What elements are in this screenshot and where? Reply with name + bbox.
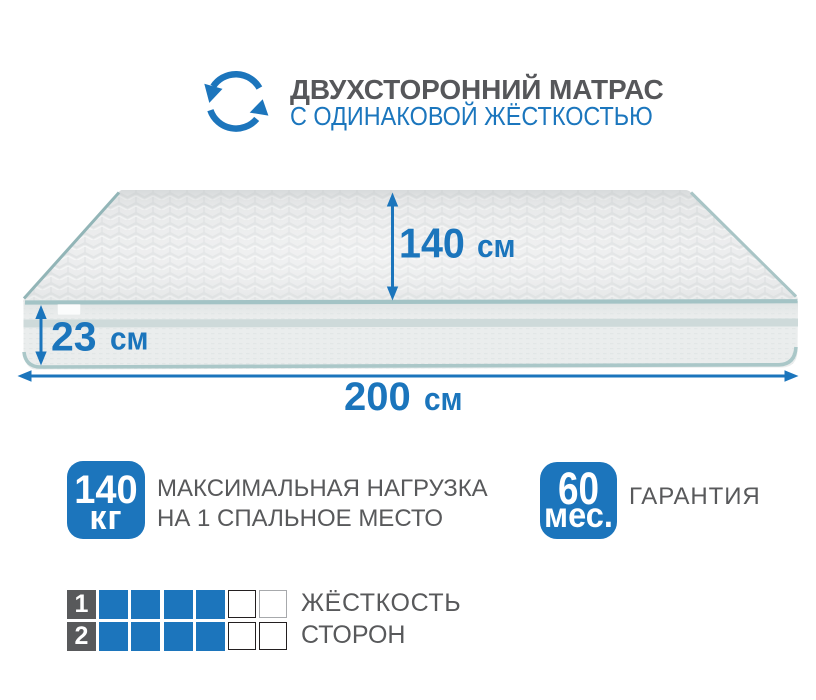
svg-text:см: см [110, 321, 149, 357]
svg-text:23: 23 [51, 314, 97, 360]
svg-text:см: см [477, 228, 516, 264]
svg-text:см: см [424, 381, 463, 417]
svg-text:140: 140 [399, 219, 465, 266]
svg-text:200: 200 [344, 375, 411, 419]
